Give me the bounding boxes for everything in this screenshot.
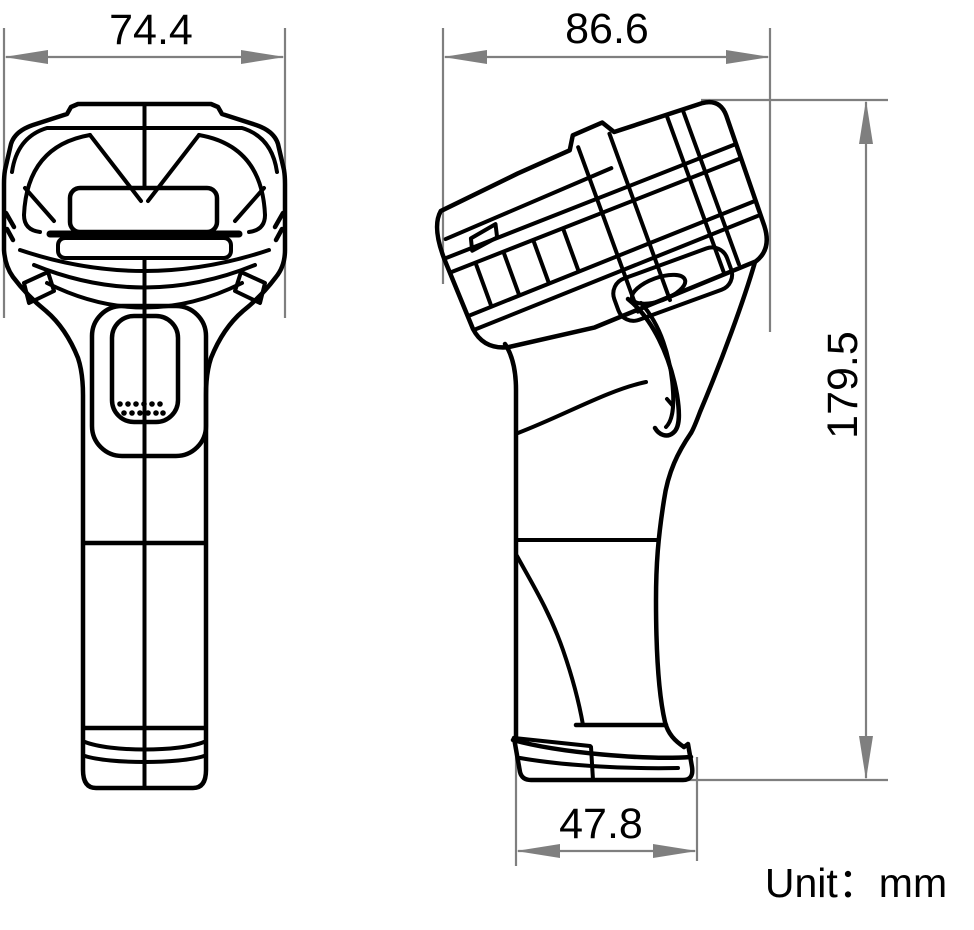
front-side-seam-right [235,188,264,221]
front-side-vent-right [235,272,265,303]
front-window-frame-right [199,135,265,215]
front-view [4,104,285,788]
unit-label: Unit：mm [765,860,947,906]
dimension-label-base-depth: 47.8 [559,800,643,848]
arrowhead-right [241,50,285,64]
side-band-line-4 [472,216,761,329]
side-trigger-inner [641,303,673,427]
side-handle-front [505,344,516,738]
scan-window [70,188,217,232]
scan-window-sill [58,238,231,258]
side-mid-seam-pair [577,134,669,312]
front-window-diagonal-right [148,135,199,201]
front-side-vent-left [24,272,54,303]
speaker-dots [117,401,166,416]
side-view [419,82,782,780]
arrowhead-down [859,736,873,780]
arrowhead-right [726,50,770,64]
dimension-label-front-width: 74.4 [109,6,193,54]
arrowhead-left [443,50,487,64]
arrowhead-up [859,100,873,144]
front-frame-foot-left [24,215,40,232]
side-handle-back [656,433,691,747]
side-head [419,82,782,375]
front-side-seam-left [25,188,54,221]
front-window-frame-left [24,135,90,215]
front-frame-foot-right [249,215,265,232]
dimension-label-head-depth: 86.6 [565,5,649,53]
side-base-divider [591,747,593,780]
front-window-diagonal-left [90,135,141,201]
front-edge-tick-right [275,213,283,240]
dimension-drawing: 74.4 86.6 179.5 47.8 [0,0,974,930]
arrowhead-right [653,844,697,858]
front-edge-tick-left [6,213,14,240]
dimension-label-overall-height: 179.5 [819,331,867,439]
side-band-line-3 [465,201,758,316]
side-boot-seam [517,556,583,725]
arrowhead-left [4,50,48,64]
trigger-surround [92,306,206,456]
drawing-canvas: 74.4 86.6 179.5 47.8 [0,0,974,930]
arrowhead-left [516,844,560,858]
side-grip-seam [518,382,646,433]
